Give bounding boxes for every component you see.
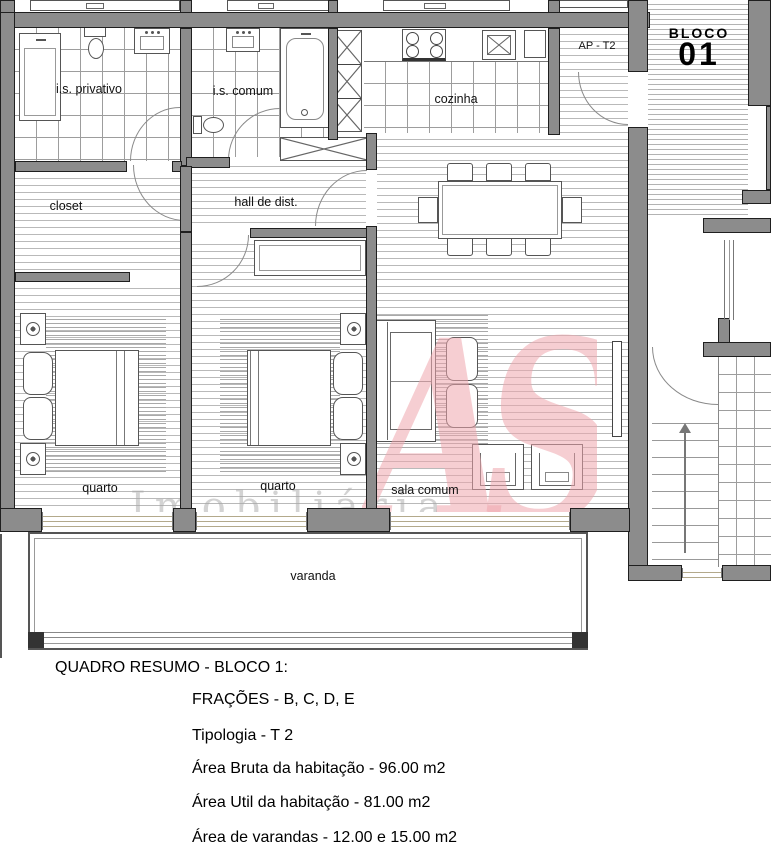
room-label-sala: sala comum: [391, 483, 458, 497]
window-symbol: [196, 512, 307, 530]
shower-inner: [24, 48, 56, 116]
fixture-mark: [258, 3, 274, 9]
bathtub-mark: [301, 33, 311, 35]
stairs-up-arrow-icon: [679, 423, 691, 433]
wall-segment: [748, 0, 771, 106]
wall-segment: [180, 28, 192, 166]
agency-logo-watermark: AS: [362, 295, 597, 585]
room-label-is-comum: i.s. comum: [213, 84, 273, 98]
lamp-icon: [26, 452, 40, 466]
sink-basin: [140, 36, 164, 50]
rail-post: [28, 632, 44, 648]
toilet-bowl-symbol: [203, 117, 224, 133]
dining-chair-symbol: [447, 238, 473, 256]
room-label-quarto-2: quarto: [260, 479, 295, 493]
summary-area-varandas: Área de varandas - 12.00 e 15.00 m2: [192, 829, 457, 847]
shower-symbol: [19, 33, 61, 121]
fixture-mark: [86, 3, 104, 9]
upper-unit-fixture: [227, 0, 337, 11]
sink-vanity-symbol: [134, 28, 170, 54]
window-symbol: [42, 512, 173, 530]
wall-segment: [180, 232, 192, 515]
bed-fold-line: [116, 351, 117, 445]
unit-label: AP - T2: [579, 40, 616, 52]
bed-fold-line: [124, 351, 125, 445]
upper-unit-fixture: [558, 0, 628, 8]
wall-segment: [766, 106, 771, 190]
rail-post: [572, 632, 588, 648]
dining-table-symbol: [438, 181, 562, 239]
burner-icon: [406, 45, 419, 58]
kitchen-counter: [364, 28, 548, 62]
summary-tipologia: Tipologia - T 2: [192, 727, 293, 745]
toilet-bowl-symbol: [88, 38, 104, 59]
wall-pier: [307, 508, 390, 532]
wall-segment: [328, 28, 338, 140]
pillow-symbol: [333, 397, 363, 440]
wall-segment: [15, 272, 130, 282]
wall-segment: [628, 127, 648, 580]
bathtub-inner: [286, 38, 324, 120]
burner-icon: [430, 32, 443, 45]
building-edge-line: [0, 534, 2, 658]
lamp-icon: [26, 322, 40, 336]
wall-pier: [173, 508, 196, 532]
stove-symbol: [402, 29, 446, 61]
wall-segment: [703, 218, 771, 233]
wall-segment: [15, 161, 127, 172]
toilet-symbol: [193, 116, 202, 134]
wall-segment: [722, 565, 771, 581]
wall-segment: [742, 190, 771, 204]
summary-area-bruta: Área Bruta da habitação - 96.00 m2: [192, 760, 446, 778]
varanda-rail-band: [40, 628, 572, 642]
wall-segment: [0, 12, 15, 532]
sink-vanity-symbol: [226, 28, 260, 52]
window-symbol: [682, 568, 722, 578]
counter-module: [524, 30, 546, 58]
wall-pier: [0, 508, 42, 532]
lamp-icon: [347, 322, 361, 336]
dining-chair-symbol: [525, 163, 551, 181]
glass-partition-symbol: [724, 240, 734, 320]
wall-segment: [180, 166, 192, 232]
lamp-icon: [347, 452, 361, 466]
wall-segment: [548, 28, 560, 135]
upper-unit-fixture: [30, 0, 180, 11]
wall-segment: [703, 342, 771, 357]
wall-segment: [628, 0, 648, 72]
wall-segment: [366, 226, 377, 515]
room-label-closet: closet: [50, 199, 83, 213]
toilet-symbol: [84, 27, 106, 37]
summary-fracoes: FRAÇÕES - B, C, D, E: [192, 691, 355, 709]
bathtub-symbol: [280, 28, 330, 128]
room-label-is-privativo: i.s. privativo: [56, 82, 122, 96]
sink-basin: [232, 36, 254, 48]
floor-plan-page: AS Imobiliária i.s. privativo i.s. comum…: [0, 0, 771, 861]
wall-pier: [570, 508, 630, 532]
tap-dots-icon: [236, 31, 239, 34]
kitchen-sink-symbol: [482, 30, 516, 60]
bed-mattress-symbol: [55, 350, 139, 446]
room-label-hall: hall de dist.: [234, 195, 297, 209]
room-label-cozinha: cozinha: [434, 92, 477, 106]
pillow-symbol: [23, 352, 53, 395]
wardrobe-inner: [259, 245, 361, 271]
room-label-varanda: varanda: [290, 569, 335, 583]
drain-icon: [301, 109, 308, 116]
window-symbol: [390, 512, 570, 530]
wall-segment: [250, 228, 368, 238]
dining-chair-symbol: [562, 197, 582, 223]
dining-chair-symbol: [447, 163, 473, 181]
pillow-symbol: [23, 397, 53, 440]
burner-icon: [430, 45, 443, 58]
built-in-wardrobe-symbol: [254, 240, 366, 276]
tv-symbol: [612, 341, 622, 437]
pillow-symbol: [333, 352, 363, 395]
dining-chair-symbol: [418, 197, 438, 223]
dining-chair-symbol: [486, 163, 512, 181]
wall-segment: [628, 565, 682, 581]
bed-fold-line: [258, 351, 259, 445]
fixture-mark: [424, 3, 446, 9]
stairs-direction-line: [684, 433, 686, 553]
bed-mattress-symbol: [247, 350, 331, 446]
summary-title: QUADRO RESUMO - BLOCO 1:: [55, 659, 288, 677]
wall-segment: [718, 318, 730, 344]
burner-icon: [406, 32, 419, 45]
upper-unit-fixture: [383, 0, 510, 11]
block-title-number: 01: [669, 40, 730, 68]
table-inner: [442, 185, 558, 235]
wall-segment: [366, 133, 377, 170]
room-label-quarto-1: quarto: [82, 481, 117, 495]
sink-basin: [487, 35, 511, 55]
dining-chair-symbol: [486, 238, 512, 256]
logo-monogram-text: AS: [362, 295, 597, 579]
summary-area-util: Área Util da habitação - 81.00 m2: [192, 794, 430, 812]
block-title: BLOCO 01: [669, 26, 730, 68]
wall-segment: [186, 157, 230, 168]
tap-dots-icon: [145, 31, 148, 34]
hall-cabinet-symbol: [280, 137, 368, 161]
floor-lobby: [718, 357, 771, 567]
shower-mark: [36, 39, 46, 41]
dining-chair-symbol: [525, 238, 551, 256]
wall-segment: [0, 12, 650, 28]
bed-fold-line: [250, 351, 251, 445]
